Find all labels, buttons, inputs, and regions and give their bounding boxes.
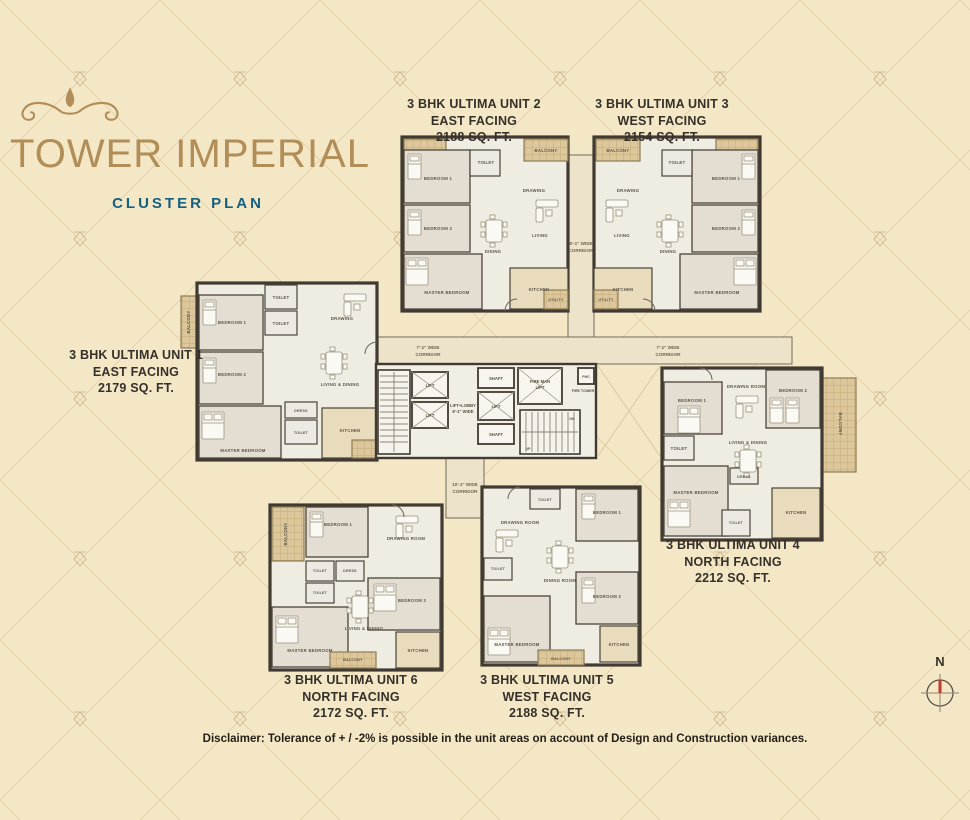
corridor-label: CORRIDOR xyxy=(415,352,441,357)
unit-3-plan: BALCONY BEDROOM 1 TOILET BEDROOM 2 DRAWI… xyxy=(594,137,760,311)
staircase xyxy=(378,370,410,454)
unit-3-label: 3 BHK ULTIMA UNIT 3 WEST FACING 2154 SQ.… xyxy=(557,96,767,146)
bed-icon xyxy=(678,406,700,433)
room-label: DRAWING ROOM xyxy=(501,520,539,525)
room-label: KITCHEN xyxy=(609,642,630,647)
room-label: BALCONY xyxy=(551,657,571,661)
room-label: TOILET xyxy=(313,569,328,573)
core-label: UP xyxy=(526,447,532,451)
room-label: BEDROOM 1 xyxy=(712,176,741,181)
room-label: KITCHEN xyxy=(408,648,429,653)
room-label: LIVING & DINING xyxy=(321,382,360,387)
unit-area: 2212 SQ. FT. xyxy=(628,570,838,587)
room-label: KITCHEN xyxy=(613,287,634,292)
room-label: TOILET xyxy=(273,295,290,300)
bed-icon xyxy=(770,398,783,423)
bed-icon xyxy=(310,512,323,537)
unit-name: 3 BHK ULTIMA UNIT 1 xyxy=(31,347,241,364)
unit-area: 2172 SQ. FT. xyxy=(246,705,456,722)
room-label: BALCONY xyxy=(607,148,630,153)
core-label: SHAFT xyxy=(489,376,503,381)
core-label: LIFT xyxy=(492,404,501,409)
balcony-area xyxy=(272,507,304,561)
balcony-area xyxy=(820,378,856,472)
room-label: TOILET xyxy=(538,498,553,502)
room-label: BALCONY xyxy=(535,148,558,153)
main-corridor xyxy=(377,337,792,364)
bed-icon xyxy=(786,398,799,423)
core-label: FIRE MAN xyxy=(530,379,550,384)
room-label: DINING xyxy=(485,249,502,254)
corridor-label: 7'-1" WIDE xyxy=(656,345,679,350)
room-label: DRAWING ROOM xyxy=(387,536,425,541)
core-label: 8'-1" WIDE xyxy=(452,409,473,414)
room-label: KITCHEN xyxy=(529,287,550,292)
compass-north-label: N xyxy=(935,654,944,669)
unit-1-label: 3 BHK ULTIMA UNIT 1 EAST FACING 2179 SQ.… xyxy=(31,347,241,397)
unit-5-label: 3 BHK ULTIMA UNIT 5 WEST FACING 2188 SQ.… xyxy=(442,672,652,722)
brand-block: TOWER IMPERIAL CLUSTER PLAN xyxy=(10,84,366,212)
room-label: BEDROOM 2 xyxy=(712,226,741,231)
unit-6-label: 3 BHK ULTIMA UNIT 6 NORTH FACING 2172 SQ… xyxy=(246,672,456,722)
room-label: UTILITY xyxy=(598,298,614,302)
corridor-label: 6'-1" WIDE xyxy=(569,241,592,246)
unit-facing: NORTH FACING xyxy=(246,689,456,706)
core-label: LIFT+LOBBY xyxy=(450,403,476,408)
compass: N xyxy=(903,650,970,722)
corridor-label: CORRIDOR xyxy=(568,248,594,253)
south-corridor xyxy=(446,458,484,518)
room-label: TOILET xyxy=(671,446,688,451)
corridor-label: 7'-1" WIDE xyxy=(416,345,439,350)
unit-name: 3 BHK ULTIMA UNIT 5 xyxy=(442,672,652,689)
core-label: FHC xyxy=(582,375,590,379)
room-label: TOILET xyxy=(273,321,290,326)
unit-area: 2188 SQ. FT. xyxy=(442,705,652,722)
room-label: BEDROOM 2 xyxy=(424,226,453,231)
corridor-label: 10'-1" WIDE xyxy=(452,482,478,487)
unit-6-plan: BALCONY BEDROOM 1 DRAWING ROOM TOILET DR… xyxy=(270,505,442,670)
disclaimer-text: Disclaimer: Tolerance of + / -2% is poss… xyxy=(40,733,970,745)
unit-name: 3 BHK ULTIMA UNIT 6 xyxy=(246,672,456,689)
unit-area: 2179 SQ. FT. xyxy=(31,380,241,397)
unit-facing: WEST FACING xyxy=(442,689,652,706)
unit-facing: EAST FACING xyxy=(369,113,579,130)
unit-facing: NORTH FACING xyxy=(628,554,838,571)
room-label: BEDROOM 1 xyxy=(593,510,622,515)
room-label: DRAWING xyxy=(523,188,546,193)
room-label: DRAWING xyxy=(331,316,354,321)
bed-icon xyxy=(406,258,428,285)
room-label: DRESS xyxy=(737,475,751,479)
room-label: BALCONY xyxy=(283,523,288,546)
unit-area: 2188 SQ. FT. xyxy=(369,129,579,146)
room-label: BEDROOM 1 xyxy=(678,398,707,403)
room-label: BEDROOM 1 xyxy=(424,176,453,181)
unit-name: 3 BHK ULTIMA UNIT 3 xyxy=(557,96,767,113)
bed-icon xyxy=(742,210,755,235)
bed-icon xyxy=(408,154,421,179)
room-label: LIVING xyxy=(614,233,630,238)
unit-name: 3 BHK ULTIMA UNIT 4 xyxy=(628,537,838,554)
core-label: SHAFT xyxy=(489,432,503,437)
room-label: BALCONY xyxy=(343,658,363,662)
room-label: TOILET xyxy=(478,160,495,165)
room-label: BEDROOM 2 xyxy=(593,594,622,599)
bed-icon xyxy=(374,584,396,611)
room-label: MASTER BEDROOM xyxy=(673,490,718,495)
core-label: LIFT xyxy=(426,413,435,418)
corridor-label: CORRIDOR xyxy=(655,352,681,357)
bed-icon xyxy=(203,300,216,325)
page-title: TOWER IMPERIAL xyxy=(10,132,366,177)
room-label: DINING ROOM xyxy=(544,578,577,583)
bed-icon xyxy=(408,210,421,235)
corridor-label: CORRIDOR xyxy=(452,489,478,494)
unit-facing: EAST FACING xyxy=(31,364,241,381)
room-label: KITCHEN xyxy=(340,428,361,433)
bed-icon xyxy=(202,412,224,439)
bed-icon xyxy=(734,258,756,285)
unit-5-plan: TOILET BEDROOM 1 DRAWING ROOM DINING ROO… xyxy=(482,487,640,665)
room-label: TOILET xyxy=(729,521,744,525)
room-label: UTILITY xyxy=(548,298,564,302)
unit-2-label: 3 BHK ULTIMA UNIT 2 EAST FACING 2188 SQ.… xyxy=(369,96,579,146)
room-label: KITCHEN xyxy=(786,510,807,515)
room-label: MASTER BEDROOM xyxy=(694,290,739,295)
room-label: LIVING xyxy=(532,233,548,238)
unit-4-label: 3 BHK ULTIMA UNIT 4 NORTH FACING 2212 SQ… xyxy=(628,537,838,587)
bed-icon xyxy=(276,616,298,643)
room-label: DINING xyxy=(660,249,677,254)
bed-icon xyxy=(582,494,595,519)
core-label: LIFT xyxy=(426,383,435,388)
room-label: DRESS xyxy=(343,569,357,573)
room-label: DRAWING ROOM xyxy=(727,384,765,389)
north-corridor xyxy=(568,155,594,337)
room-label: BEDROOM 1 xyxy=(324,522,353,527)
central-core: LIFT LIFT LIFT+LOBBY 8'-1" WIDE SHAFT LI… xyxy=(376,364,596,458)
room-label: MASTER BEDROOM xyxy=(424,290,469,295)
core-label: DN xyxy=(569,417,575,421)
core-label: FIRE TOWER xyxy=(572,389,595,393)
room-label: MASTER BEDROOM xyxy=(220,448,265,453)
core-label: LIFT xyxy=(536,385,545,390)
page-subtitle: CLUSTER PLAN xyxy=(10,195,366,212)
room-label: TOILET xyxy=(313,591,328,595)
room-label: DRESS xyxy=(294,409,308,413)
room-label: BEDROOM 2 xyxy=(779,388,808,393)
bed-icon xyxy=(742,154,755,179)
room-label: LIVING & DINING xyxy=(729,440,768,445)
room-label: MASTER BEDROOM xyxy=(494,642,539,647)
unit-facing: WEST FACING xyxy=(557,113,767,130)
room-label: BALCONY xyxy=(186,311,191,334)
room-label: BALCONY xyxy=(838,413,843,436)
unit-area: 2154 SQ. FT. xyxy=(557,129,767,146)
room-label: MASTER BEDROOM xyxy=(287,648,332,653)
bed-icon xyxy=(668,500,690,527)
unit-name: 3 BHK ULTIMA UNIT 2 xyxy=(369,96,579,113)
room-label: TOILET xyxy=(669,160,686,165)
room-label: LIVING & DINING xyxy=(345,626,384,631)
flourish-ornament xyxy=(10,84,130,126)
unit-2-plan: BALCONY BEDROOM 1 TOILET BEDROOM 2 DRAWI… xyxy=(402,137,568,311)
room-label: DRAWING xyxy=(617,188,640,193)
cluster-plan-page: { "header": { "title": "TOWER IMPERIAL",… xyxy=(0,0,970,820)
room-label: BEDROOM 1 xyxy=(218,320,247,325)
bed-icon xyxy=(582,578,595,603)
room-label: BEDROOM 2 xyxy=(398,598,427,603)
utility-area xyxy=(352,440,376,458)
room-label: TOILET xyxy=(294,431,309,435)
room-label: TOILET xyxy=(491,567,506,571)
